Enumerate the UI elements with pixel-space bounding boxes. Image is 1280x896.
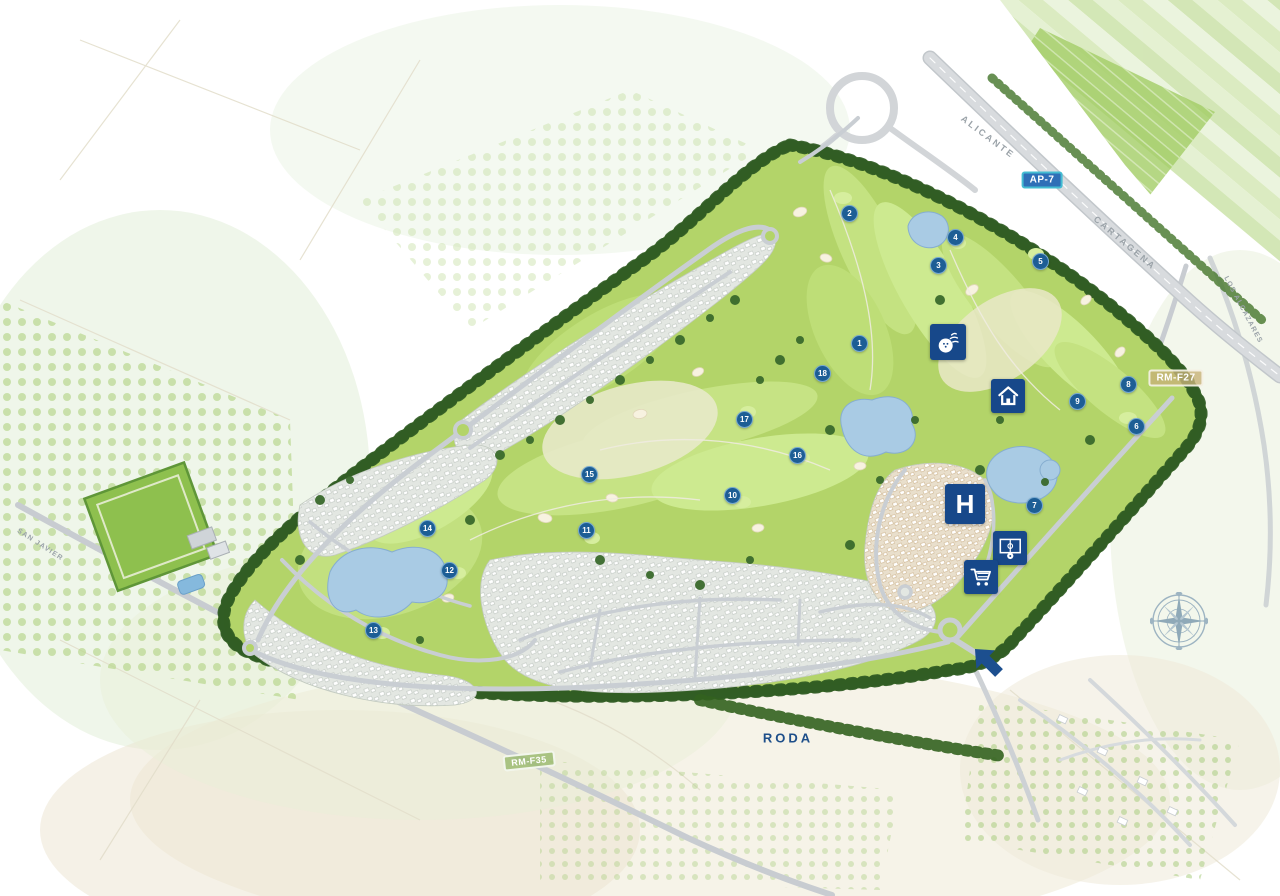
- golf-club-poi[interactable]: [930, 324, 966, 360]
- hole-marker-9[interactable]: 9: [1069, 393, 1086, 410]
- hole-marker-11[interactable]: 11: [578, 522, 595, 539]
- golf-icon: [934, 328, 962, 356]
- hole-marker-4[interactable]: 4: [947, 229, 964, 246]
- road-badge-rm-f27: RM-F27: [1148, 370, 1203, 387]
- shopping-cart-icon: [968, 564, 995, 591]
- hole-marker-7[interactable]: 7: [1026, 497, 1043, 514]
- town-label-roda: RODA: [763, 731, 813, 746]
- hole-marker-3[interactable]: 3: [930, 257, 947, 274]
- hole-marker-5[interactable]: 5: [1032, 253, 1049, 270]
- road-badge-ap7: AP-7: [1022, 172, 1063, 189]
- compass-rose-icon: [1150, 592, 1208, 650]
- map-artwork: [0, 0, 1280, 896]
- hole-marker-18[interactable]: 18: [814, 365, 831, 382]
- hole-marker-13[interactable]: 13: [365, 622, 382, 639]
- house-icon: [995, 383, 1022, 410]
- clubhouse-poi[interactable]: [991, 379, 1025, 413]
- hotel-h-icon: H: [956, 491, 975, 517]
- hole-marker-2[interactable]: 2: [841, 205, 858, 222]
- hole-marker-16[interactable]: 16: [789, 447, 806, 464]
- hole-marker-15[interactable]: 15: [581, 466, 598, 483]
- resort-map: ALICANTE CARTAGENA LOS ALCAZARES SAN JAV…: [0, 0, 1280, 896]
- hole-marker-1[interactable]: 1: [851, 335, 868, 352]
- hole-marker-8[interactable]: 8: [1120, 376, 1137, 393]
- shopping-poi[interactable]: [964, 560, 998, 594]
- hotel-poi[interactable]: H: [945, 484, 985, 524]
- hole-marker-12[interactable]: 12: [441, 562, 458, 579]
- hole-marker-6[interactable]: 6: [1128, 418, 1145, 435]
- sports-field-icon: [997, 535, 1024, 562]
- sports-complex-poi[interactable]: [993, 531, 1027, 565]
- hole-marker-17[interactable]: 17: [736, 411, 753, 428]
- hole-marker-10[interactable]: 10: [724, 487, 741, 504]
- entrance-arrow-icon: [964, 638, 1010, 684]
- hole-marker-14[interactable]: 14: [419, 520, 436, 537]
